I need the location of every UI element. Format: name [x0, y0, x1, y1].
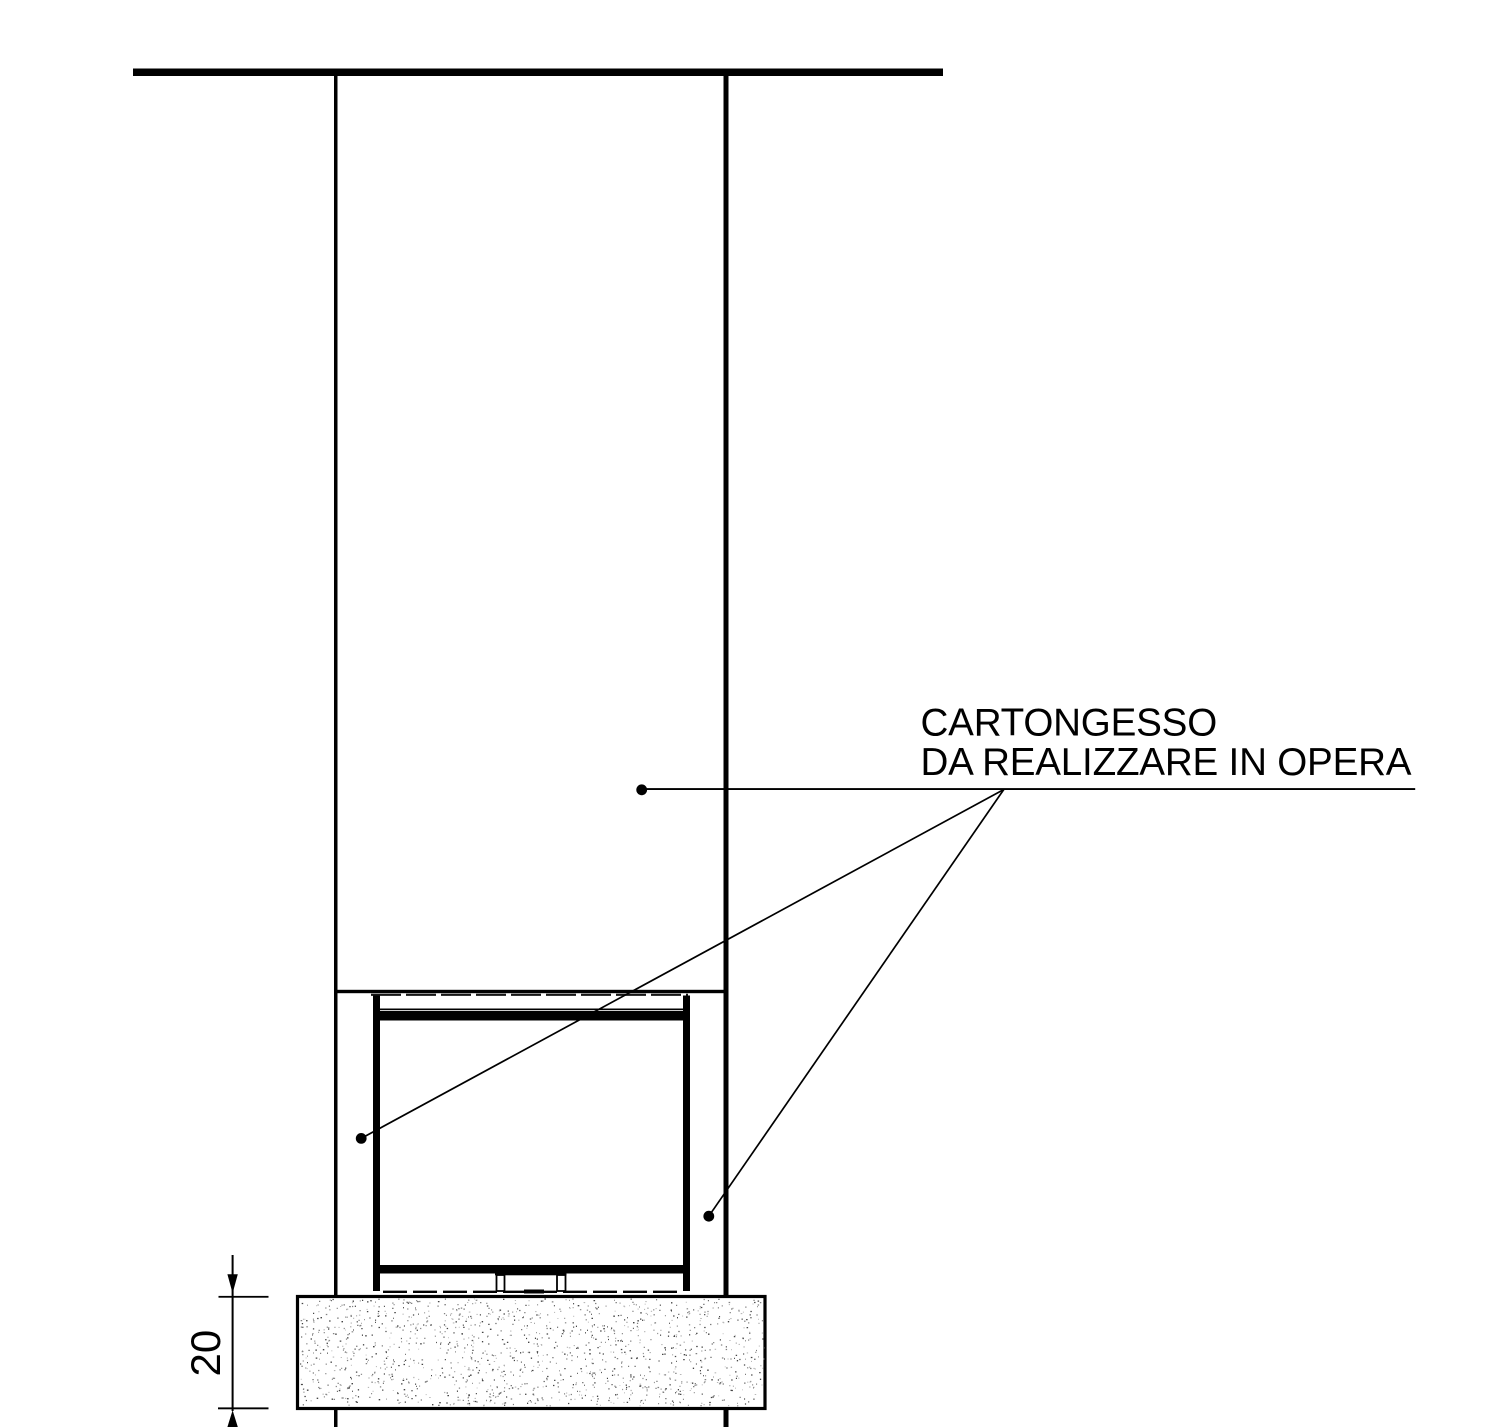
svg-text:CARTONGESSO: CARTONGESSO — [921, 701, 1218, 744]
svg-text:DA REALIZZARE IN OPERA: DA REALIZZARE IN OPERA — [921, 741, 1412, 784]
svg-text:20: 20 — [182, 1330, 229, 1377]
